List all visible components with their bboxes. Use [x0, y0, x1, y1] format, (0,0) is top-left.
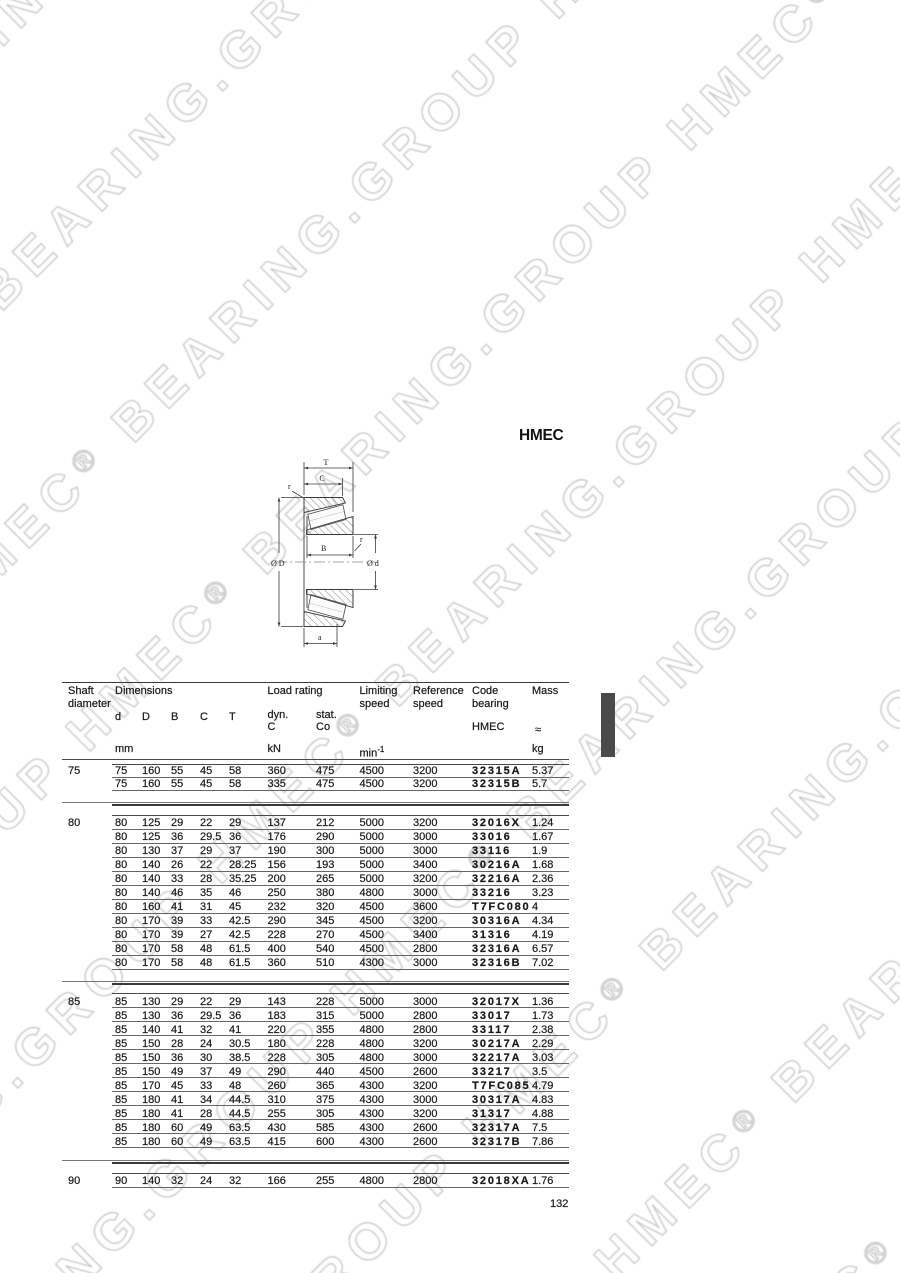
svg-text:T: T [324, 458, 329, 467]
svg-text:B: B [321, 544, 326, 553]
svg-text:r: r [360, 535, 363, 544]
svg-text:r: r [288, 482, 291, 491]
svg-text:C: C [319, 474, 324, 483]
svg-text:a: a [318, 633, 322, 642]
svg-text:Ø D: Ø D [271, 559, 285, 568]
svg-text:Ø d: Ø d [367, 559, 379, 568]
